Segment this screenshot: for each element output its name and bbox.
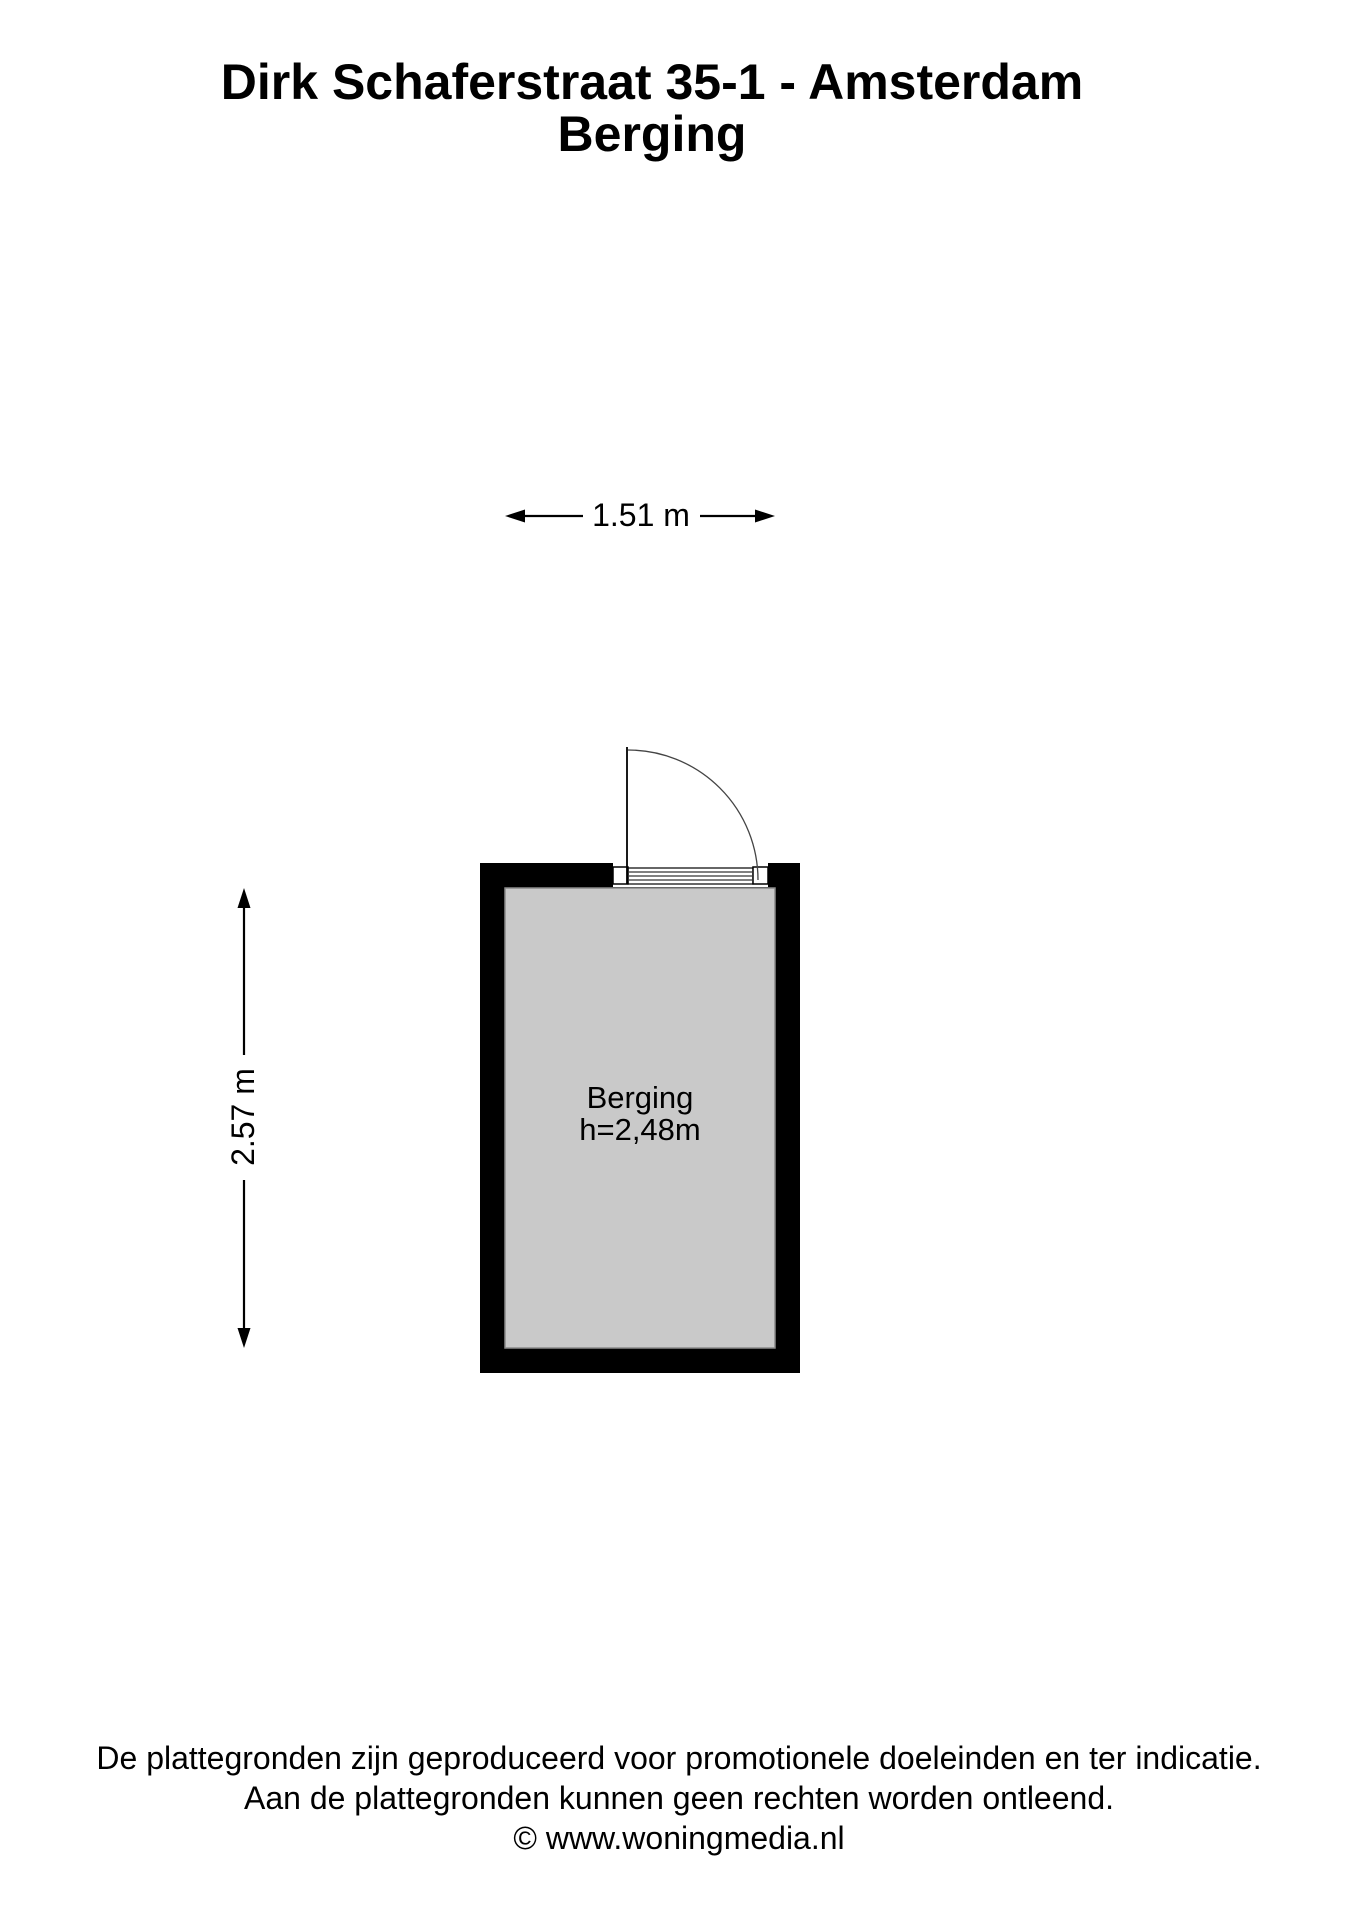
door-jamb-left: [613, 867, 628, 884]
floorplan-page: Dirk Schaferstraat 35-1 - Amsterdam Berg…: [0, 0, 1358, 1920]
copyright-line: © www.woningmedia.nl: [0, 1818, 1358, 1858]
width-dimension-label: 1.51 m: [491, 497, 791, 533]
door-threshold: [628, 868, 753, 884]
disclaimer-line-1: De plattegronden zijn geproduceerd voor …: [0, 1738, 1358, 1778]
room-name-label: Berging: [490, 1081, 790, 1115]
height-dimension-label: 2.57 m: [225, 967, 261, 1267]
room-ceiling-height-label: h=2,48m: [490, 1113, 790, 1147]
disclaimer-line-2: Aan de plattegronden kunnen geen rechten…: [0, 1778, 1358, 1818]
door-jamb-right: [753, 867, 768, 884]
floorplan-drawing: [0, 0, 1358, 1920]
